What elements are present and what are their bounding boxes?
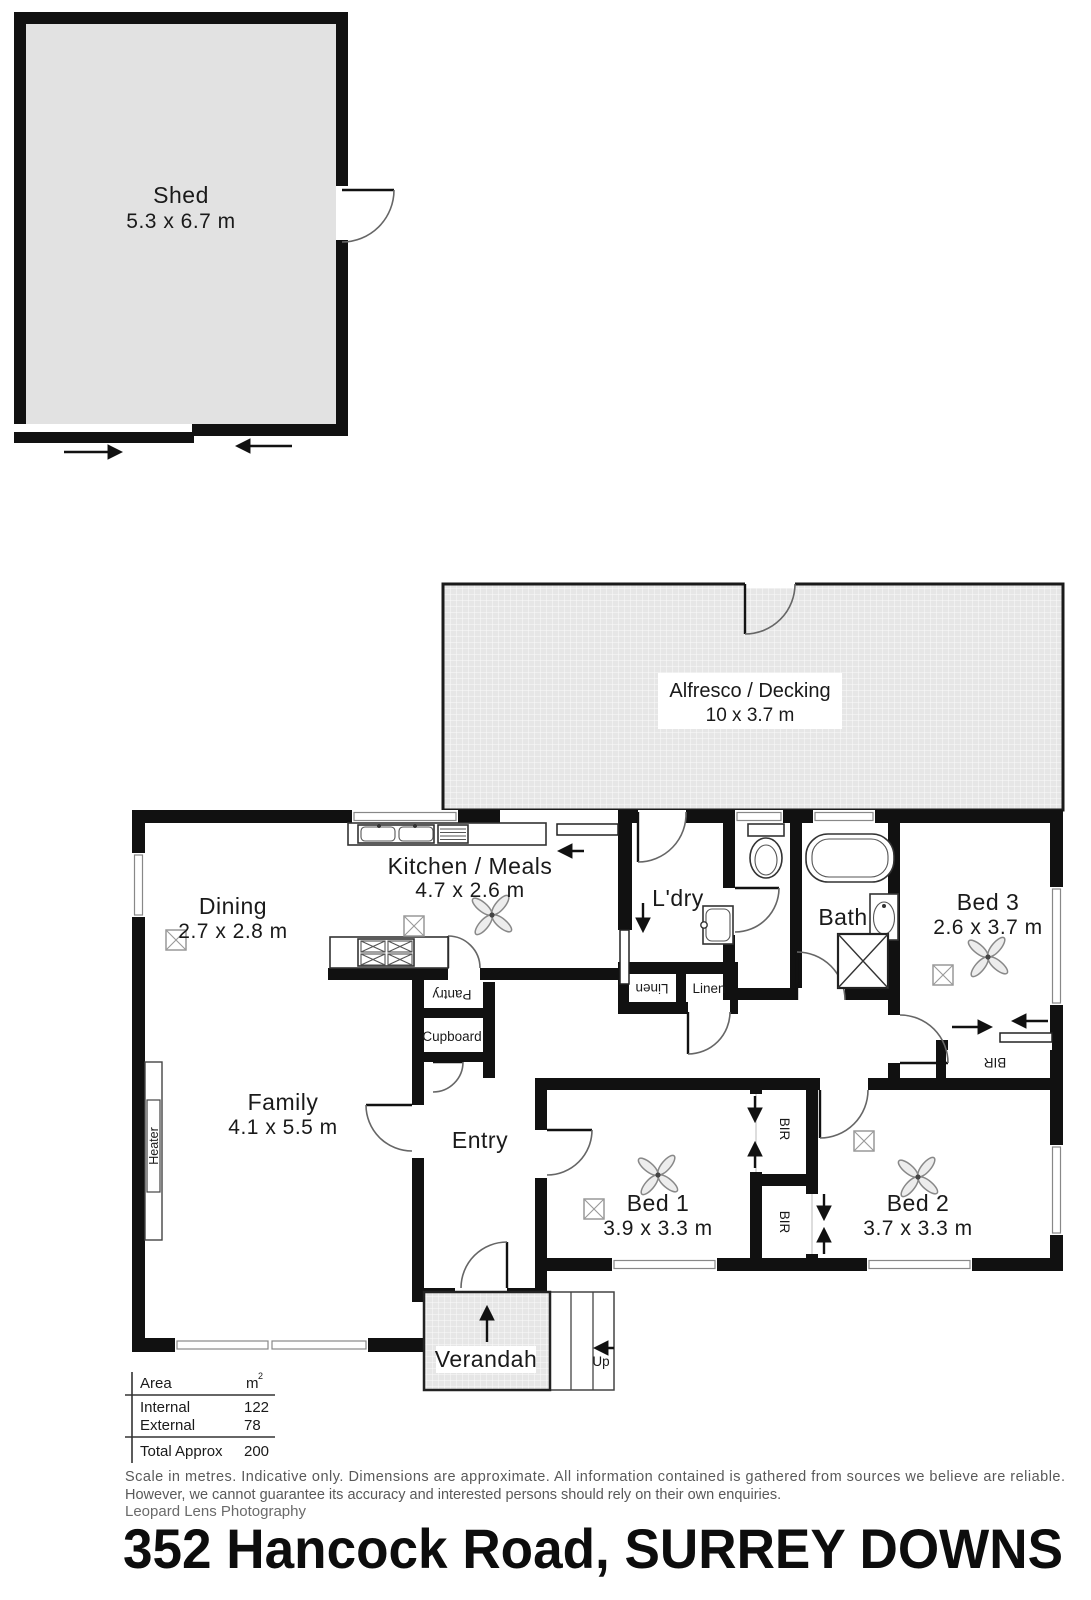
alfresco-deck: Alfresco / Decking 10 x 3.7 m <box>443 581 1063 810</box>
dining-label: Dining <box>199 893 267 919</box>
area-table-header-area: Area <box>140 1375 172 1392</box>
area-row-internal-value: 122 <box>244 1399 269 1416</box>
bed2-downlight-icon <box>854 1131 874 1151</box>
area-total-value: 200 <box>244 1443 269 1460</box>
footer: Scale in metres. Indicative only. Dimens… <box>123 1469 1065 1580</box>
alfresco-label: Alfresco / Decking <box>669 680 830 702</box>
shed-label: Shed <box>153 182 209 208</box>
shed-dims: 5.3 x 6.7 m <box>126 210 235 233</box>
laundry-sliding-panel <box>620 930 629 984</box>
laundry-sink-icon <box>701 906 733 944</box>
family-dims: 4.1 x 5.5 m <box>228 1116 337 1139</box>
steps <box>550 1292 614 1390</box>
linen-left-label: Linen <box>635 981 668 996</box>
stove-icon <box>330 937 448 968</box>
heater-label: Heater <box>147 1127 161 1165</box>
bed2-label: Bed 2 <box>887 1190 950 1216</box>
bir-bed1-label: BIR <box>777 1118 792 1141</box>
shower-icon <box>838 934 888 988</box>
bir3-sliding-panel <box>1000 1033 1052 1042</box>
bir-bed2-label: BIR <box>777 1211 792 1234</box>
family-label: Family <box>248 1089 319 1115</box>
kitchen-downlight-icon <box>404 916 424 936</box>
dining-dims: 2.7 x 2.8 m <box>178 920 287 943</box>
bed1-downlight-icon <box>584 1199 604 1219</box>
kitchen-dims: 4.7 x 2.6 m <box>415 879 524 902</box>
pantry-label: Pantry <box>432 987 471 1002</box>
verandah-label: Verandah <box>435 1346 537 1372</box>
cupboard-label: Cupboard <box>422 1029 481 1044</box>
up-label: Up <box>592 1354 609 1369</box>
entry-label: Entry <box>452 1127 508 1153</box>
laundry-label: L'dry <box>652 885 704 911</box>
disclaimer-line1: Scale in metres. Indicative only. Dimens… <box>125 1469 1065 1485</box>
bed1-dims: 3.9 x 3.3 m <box>603 1217 712 1240</box>
address-title: 352 Hancock Road, SURREY DOWNS <box>123 1517 1063 1580</box>
bed2-dims: 3.7 x 3.3 m <box>863 1217 972 1240</box>
disclaimer-line2: However, we cannot guarantee its accurac… <box>125 1487 781 1503</box>
bathtub-icon <box>806 834 894 882</box>
bed3-downlight-icon <box>933 965 953 985</box>
bed3-fan-icon <box>966 935 1010 979</box>
kitchen-label: Kitchen / Meals <box>388 853 553 879</box>
bath-label: Bath <box>818 904 867 930</box>
bed3-label: Bed 3 <box>957 889 1020 915</box>
alfresco-sliding-panel <box>557 824 618 835</box>
area-row-external-label: External <box>140 1417 195 1434</box>
kitchen-sink-icon <box>348 823 546 845</box>
bir-bed3-label: BIR <box>984 1055 1007 1070</box>
linen-right-label: Linen <box>692 981 725 996</box>
shed-outbuilding: Shed 5.3 x 6.7 m <box>14 18 394 452</box>
area-table: Area m 2 Internal 122 External 78 Total … <box>125 1371 275 1463</box>
bed3-dims: 2.6 x 3.7 m <box>933 916 1042 939</box>
bed1-label: Bed 1 <box>627 1190 690 1216</box>
floorplan-page: Shed 5.3 x 6.7 m Alfresco / Decking 10 x… <box>0 0 1091 1600</box>
area-table-header-unit-sup: 2 <box>258 1371 263 1381</box>
area-row-external-value: 78 <box>244 1417 261 1434</box>
area-table-header-unit: m <box>246 1375 259 1392</box>
floorplan-canvas: Shed 5.3 x 6.7 m Alfresco / Decking 10 x… <box>0 0 1091 1600</box>
area-row-internal-label: Internal <box>140 1399 190 1416</box>
area-total-label: Total Approx <box>140 1443 223 1460</box>
toilet-icon <box>748 824 784 878</box>
shed-door-arc <box>342 190 394 242</box>
alfresco-dims: 10 x 3.7 m <box>706 705 795 726</box>
